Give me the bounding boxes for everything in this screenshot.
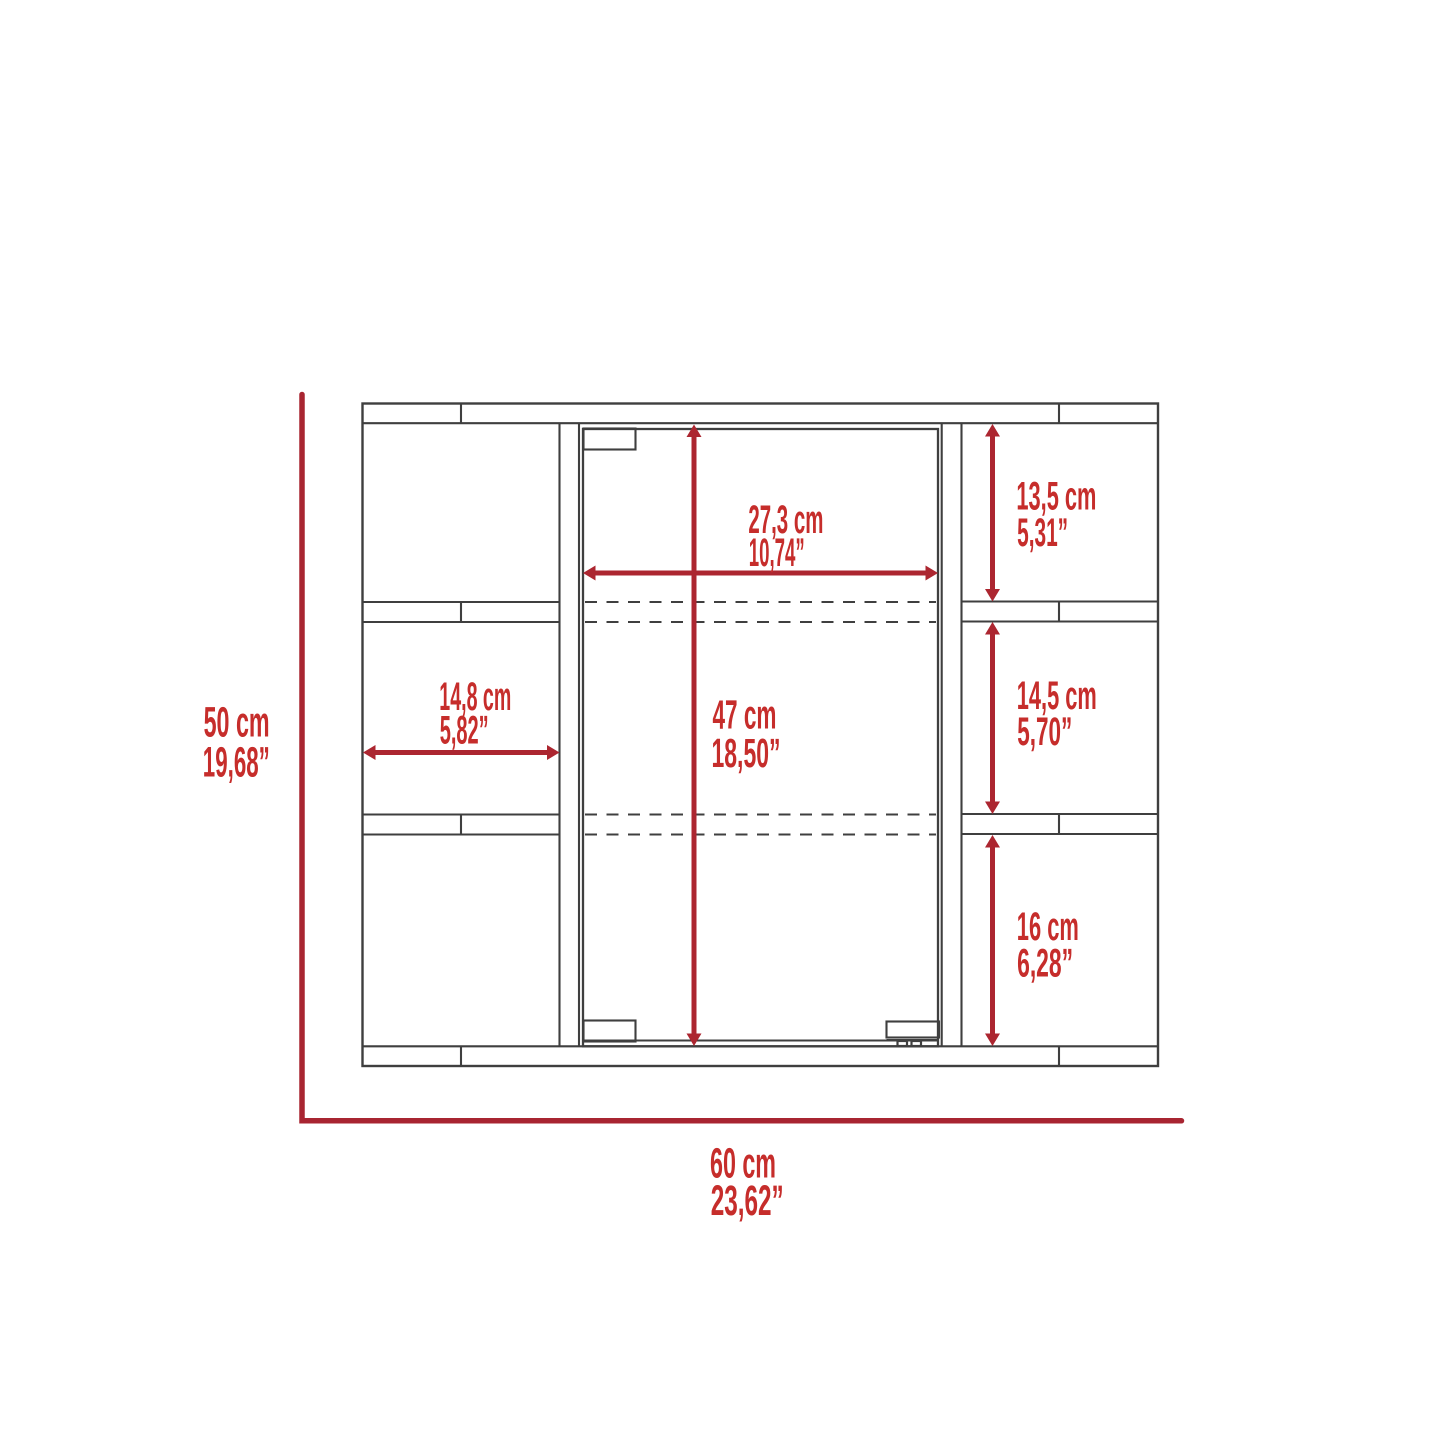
svg-text:6,28”: 6,28” (1017, 941, 1073, 985)
svg-text:19,68”: 19,68” (203, 740, 270, 787)
svg-text:5,31”: 5,31” (1017, 511, 1068, 555)
svg-text:10,74”: 10,74” (749, 531, 805, 575)
svg-text:5,70”: 5,70” (1017, 710, 1072, 754)
svg-text:18,50”: 18,50” (712, 730, 781, 776)
svg-text:5,82”: 5,82” (440, 708, 489, 752)
svg-text:23,62”: 23,62” (711, 1178, 784, 1225)
